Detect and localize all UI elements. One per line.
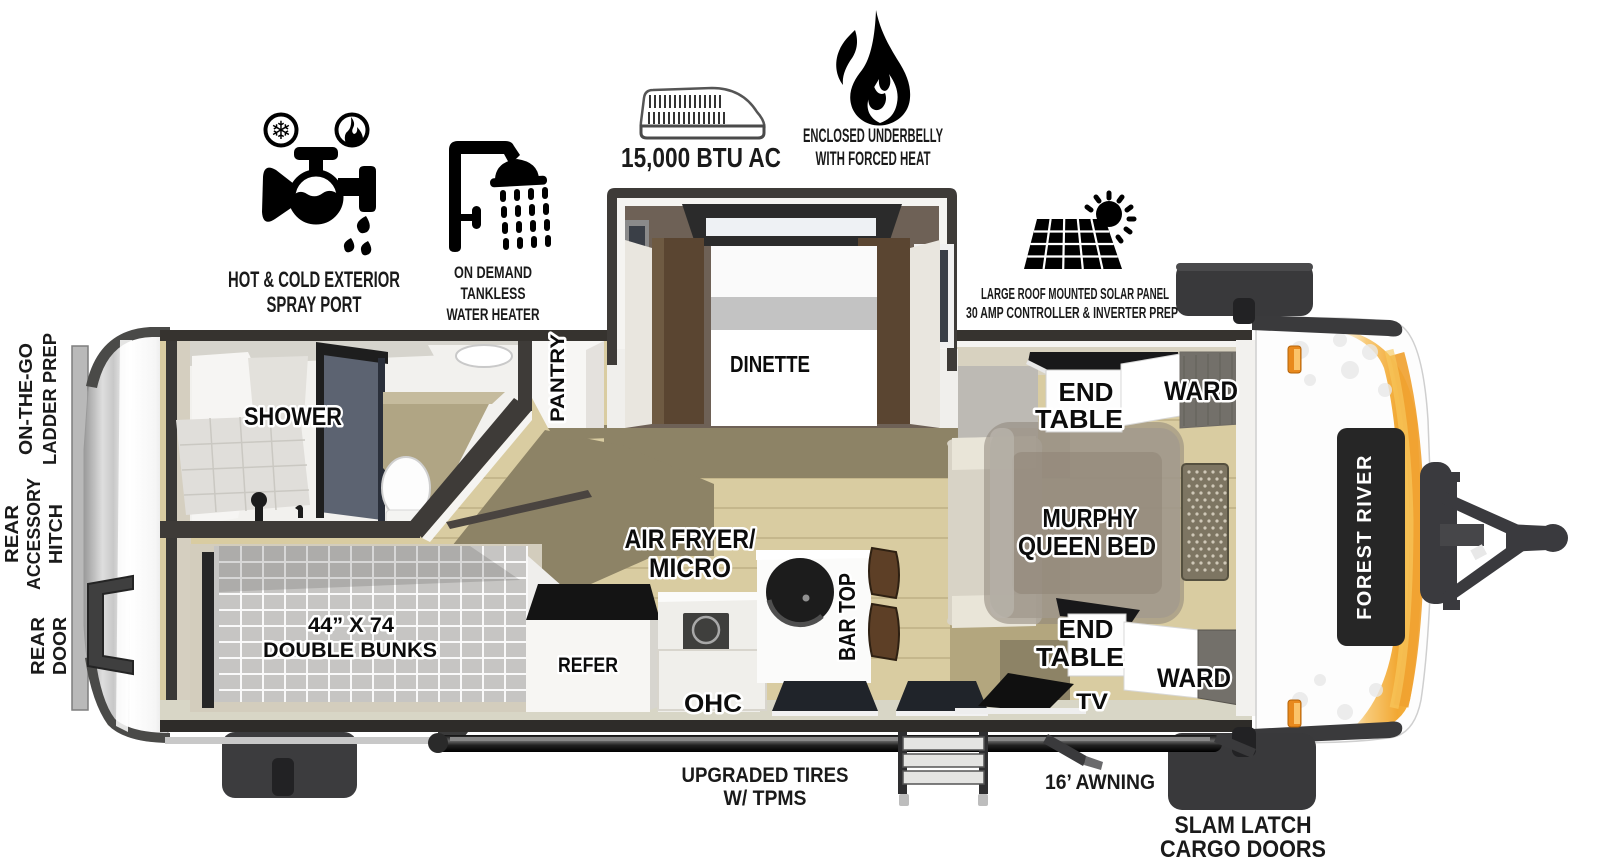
svg-text:PANTRY: PANTRY: [548, 334, 569, 422]
svg-text:TABLE: TABLE: [1035, 404, 1123, 434]
svg-text:WARD: WARD: [1164, 376, 1238, 406]
svg-text:WITH FORCED HEAT: WITH FORCED HEAT: [816, 149, 931, 170]
svg-text:TABLE: TABLE: [1036, 642, 1124, 672]
svg-text:DOOR: DOOR: [50, 617, 70, 675]
svg-text:OHC: OHC: [684, 690, 742, 718]
svg-text:MURPHY: MURPHY: [1043, 503, 1138, 533]
svg-text:AIR FRYER/: AIR FRYER/: [625, 524, 756, 554]
svg-text:15,000 BTU AC: 15,000 BTU AC: [621, 142, 781, 173]
svg-text:MICRO: MICRO: [649, 553, 731, 583]
svg-text:ENCLOSED UNDERBELLY: ENCLOSED UNDERBELLY: [803, 126, 943, 147]
svg-text:TV: TV: [1076, 689, 1108, 714]
svg-text:CARGO DOORS: CARGO DOORS: [1160, 836, 1326, 859]
svg-text:LADDER PREP: LADDER PREP: [40, 333, 60, 465]
svg-text:LARGE ROOF MOUNTED SOLAR PANEL: LARGE ROOF MOUNTED SOLAR PANEL: [981, 286, 1169, 303]
svg-text:FOREST RIVER: FOREST RIVER: [1354, 454, 1376, 620]
svg-text:44” X 74: 44” X 74: [308, 614, 394, 637]
svg-text:SHOWER: SHOWER: [244, 403, 342, 431]
svg-text:W/ TPMS: W/ TPMS: [724, 787, 807, 810]
svg-text:REAR: REAR: [28, 617, 48, 675]
svg-text:16’ AWNING: 16’ AWNING: [1045, 771, 1155, 794]
svg-text:BAR TOP: BAR TOP: [834, 573, 860, 661]
svg-text:SLAM LATCH: SLAM LATCH: [1175, 812, 1312, 839]
svg-text:REAR: REAR: [2, 505, 22, 563]
svg-text:HITCH: HITCH: [46, 504, 66, 564]
svg-text:DOUBLE BUNKS: DOUBLE BUNKS: [263, 639, 437, 662]
svg-text:WATER HEATER: WATER HEATER: [447, 305, 540, 324]
svg-text:HOT & COLD EXTERIOR: HOT & COLD EXTERIOR: [228, 267, 400, 292]
svg-text:UPGRADED TIRES: UPGRADED TIRES: [682, 764, 849, 787]
svg-text:ON DEMAND: ON DEMAND: [454, 263, 532, 282]
svg-text:QUEEN BED: QUEEN BED: [1018, 531, 1156, 561]
svg-text:SPRAY PORT: SPRAY PORT: [267, 292, 362, 317]
svg-text:END: END: [1059, 377, 1114, 407]
svg-text:DINETTE: DINETTE: [730, 351, 810, 377]
svg-text:TANKLESS: TANKLESS: [461, 284, 526, 303]
svg-text:ACCESSORY: ACCESSORY: [24, 478, 44, 590]
svg-text:ON-THE-GO: ON-THE-GO: [16, 343, 36, 455]
svg-text:30 AMP CONTROLLER & INVERTER P: 30 AMP CONTROLLER & INVERTER PREP: [966, 305, 1178, 322]
svg-text:WARD: WARD: [1157, 663, 1231, 693]
svg-text:END: END: [1059, 614, 1114, 644]
svg-text:❄: ❄: [271, 117, 292, 145]
svg-text:REFER: REFER: [558, 654, 618, 677]
